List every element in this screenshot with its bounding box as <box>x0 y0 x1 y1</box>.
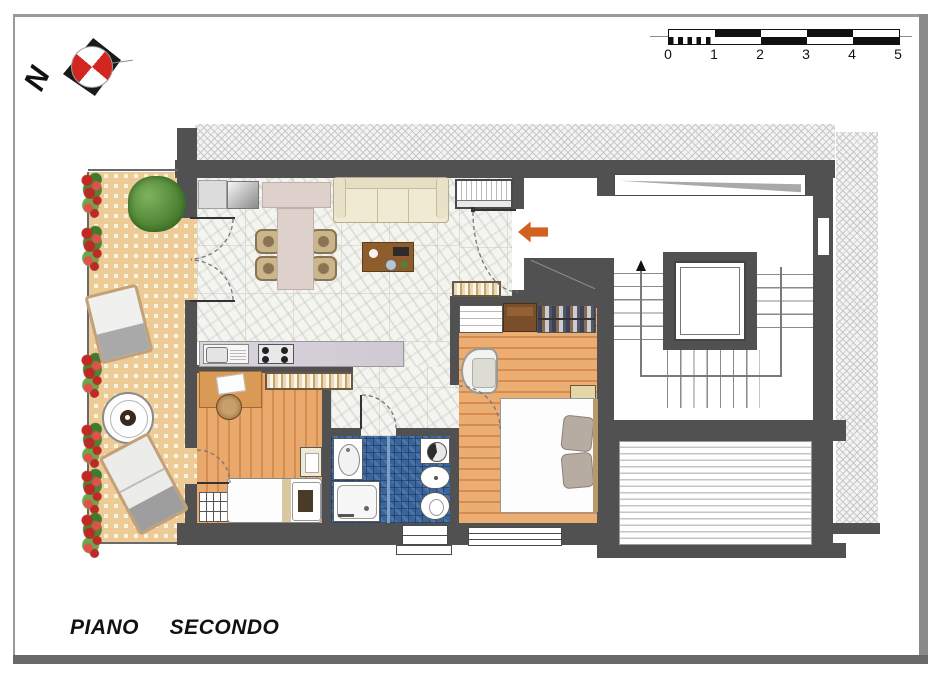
scale-tick-1: 1 <box>710 46 718 62</box>
scale-seg-5 <box>853 30 899 44</box>
wall-landing-northwest <box>597 178 614 196</box>
stair-flight-east <box>757 262 813 340</box>
dining-chair <box>310 256 337 281</box>
single-bed-pillow <box>292 482 321 521</box>
wall-landing-northeast <box>806 178 833 196</box>
scale-tick-4: 4 <box>848 46 856 62</box>
single-bed <box>227 478 322 523</box>
wall-entry <box>512 178 524 209</box>
wall-bedroom-bath <box>322 373 331 523</box>
floor-plan-sheet: N 0 1 2 3 4 5 <box>0 0 944 675</box>
wall-bath-top-west <box>331 428 361 436</box>
door-swing-arc <box>190 259 234 301</box>
washing-machine <box>420 438 450 464</box>
sofa <box>333 177 449 223</box>
terrace-parapet-top <box>88 169 178 171</box>
stair-flight-south <box>655 350 760 408</box>
door-swing-arc <box>362 395 396 428</box>
scale-tick-3: 3 <box>802 46 810 62</box>
wall-garage-bottom <box>597 543 846 558</box>
bookshelf-small-bedroom <box>265 372 353 390</box>
stair-guide-east <box>780 267 782 377</box>
stair-guide-west <box>640 270 642 377</box>
scale-tick-0: 0 <box>664 46 672 62</box>
stairwell-window-leaf <box>619 178 801 193</box>
wall-master-west-lower <box>450 428 459 530</box>
stairwell-east-slot <box>818 218 829 255</box>
cooktop <box>258 344 294 364</box>
entry-door-leaf <box>473 209 516 211</box>
wall-garage-top <box>597 420 846 441</box>
small-bedroom-nightstand <box>300 447 322 477</box>
desk-chair <box>216 394 242 420</box>
wall-left-mid <box>185 300 197 448</box>
flower-planter <box>78 172 108 218</box>
hatch-strip-right <box>836 132 878 524</box>
radiator <box>199 492 229 522</box>
kitchen-wall-cabinet <box>198 180 227 209</box>
north-label: N <box>18 62 58 96</box>
stair-guide-south <box>640 375 782 377</box>
fridge <box>227 181 259 209</box>
wall-garage-east <box>810 441 833 558</box>
dresser <box>503 303 537 332</box>
frame-bottom <box>13 655 928 664</box>
scale-seg-4 <box>807 30 853 44</box>
door-swing-arc <box>190 218 234 260</box>
kitchen-sink <box>203 344 249 364</box>
north-indicator: N <box>25 32 135 116</box>
flower-planter <box>78 512 108 558</box>
coffee-table <box>362 242 414 272</box>
entrance-arrow-icon <box>518 219 548 245</box>
arrow-up-icon <box>636 260 646 271</box>
headboard <box>593 399 598 512</box>
compass-rose <box>71 46 113 88</box>
wall-hatch-cap <box>833 523 880 534</box>
wall-landing-corner <box>524 258 600 296</box>
hatch-band-top <box>195 124 835 162</box>
bathroom-window <box>402 525 448 545</box>
garage-roof-panel <box>619 441 812 545</box>
frame-top <box>14 14 926 17</box>
wall-master-west-upper <box>450 296 459 385</box>
bathroom-sink <box>333 438 363 480</box>
frame-left <box>13 14 15 662</box>
toilet <box>420 492 450 520</box>
wardrobe-shelves <box>459 305 503 333</box>
wall-garage-west <box>597 420 619 558</box>
door-swing-arc <box>197 450 230 483</box>
double-bed <box>500 398 597 513</box>
scale-tick-5: 5 <box>894 46 902 62</box>
shower <box>333 481 380 522</box>
dining-table-top <box>262 182 331 208</box>
scale-seg-1 <box>669 30 715 44</box>
bed-pillow-north <box>560 414 594 452</box>
master-bedroom-window <box>468 527 562 546</box>
wall-stairwell-west <box>597 258 614 425</box>
scale-bar: 0 1 2 3 4 5 <box>650 26 912 64</box>
bed-pillow-south <box>561 452 595 490</box>
scale-tick-2: 2 <box>756 46 764 62</box>
wall-bath-top-east <box>396 428 455 436</box>
flower-planter <box>78 468 108 514</box>
closet-hanging-clothes <box>537 305 596 333</box>
door-swing-arc <box>459 386 500 429</box>
bathroom-divider-line <box>387 436 390 523</box>
duvet <box>501 399 565 512</box>
dining-table-stem <box>277 208 314 290</box>
scale-seg-2 <box>715 30 761 44</box>
scale-seg-3 <box>761 30 807 44</box>
scale-segments <box>668 29 900 45</box>
stairwell-window <box>614 174 806 196</box>
page-title: PIANO SECONDO <box>70 616 279 640</box>
kitchen-counter <box>199 341 404 367</box>
bathroom-window-sill <box>396 545 452 555</box>
bidet <box>420 466 450 489</box>
entry-closet <box>455 179 513 209</box>
frame-right <box>919 14 928 662</box>
flower-planter <box>78 225 108 271</box>
dining-chair <box>310 229 337 254</box>
door-swing-arc <box>473 212 518 292</box>
elevator-cab-inner <box>680 267 740 335</box>
